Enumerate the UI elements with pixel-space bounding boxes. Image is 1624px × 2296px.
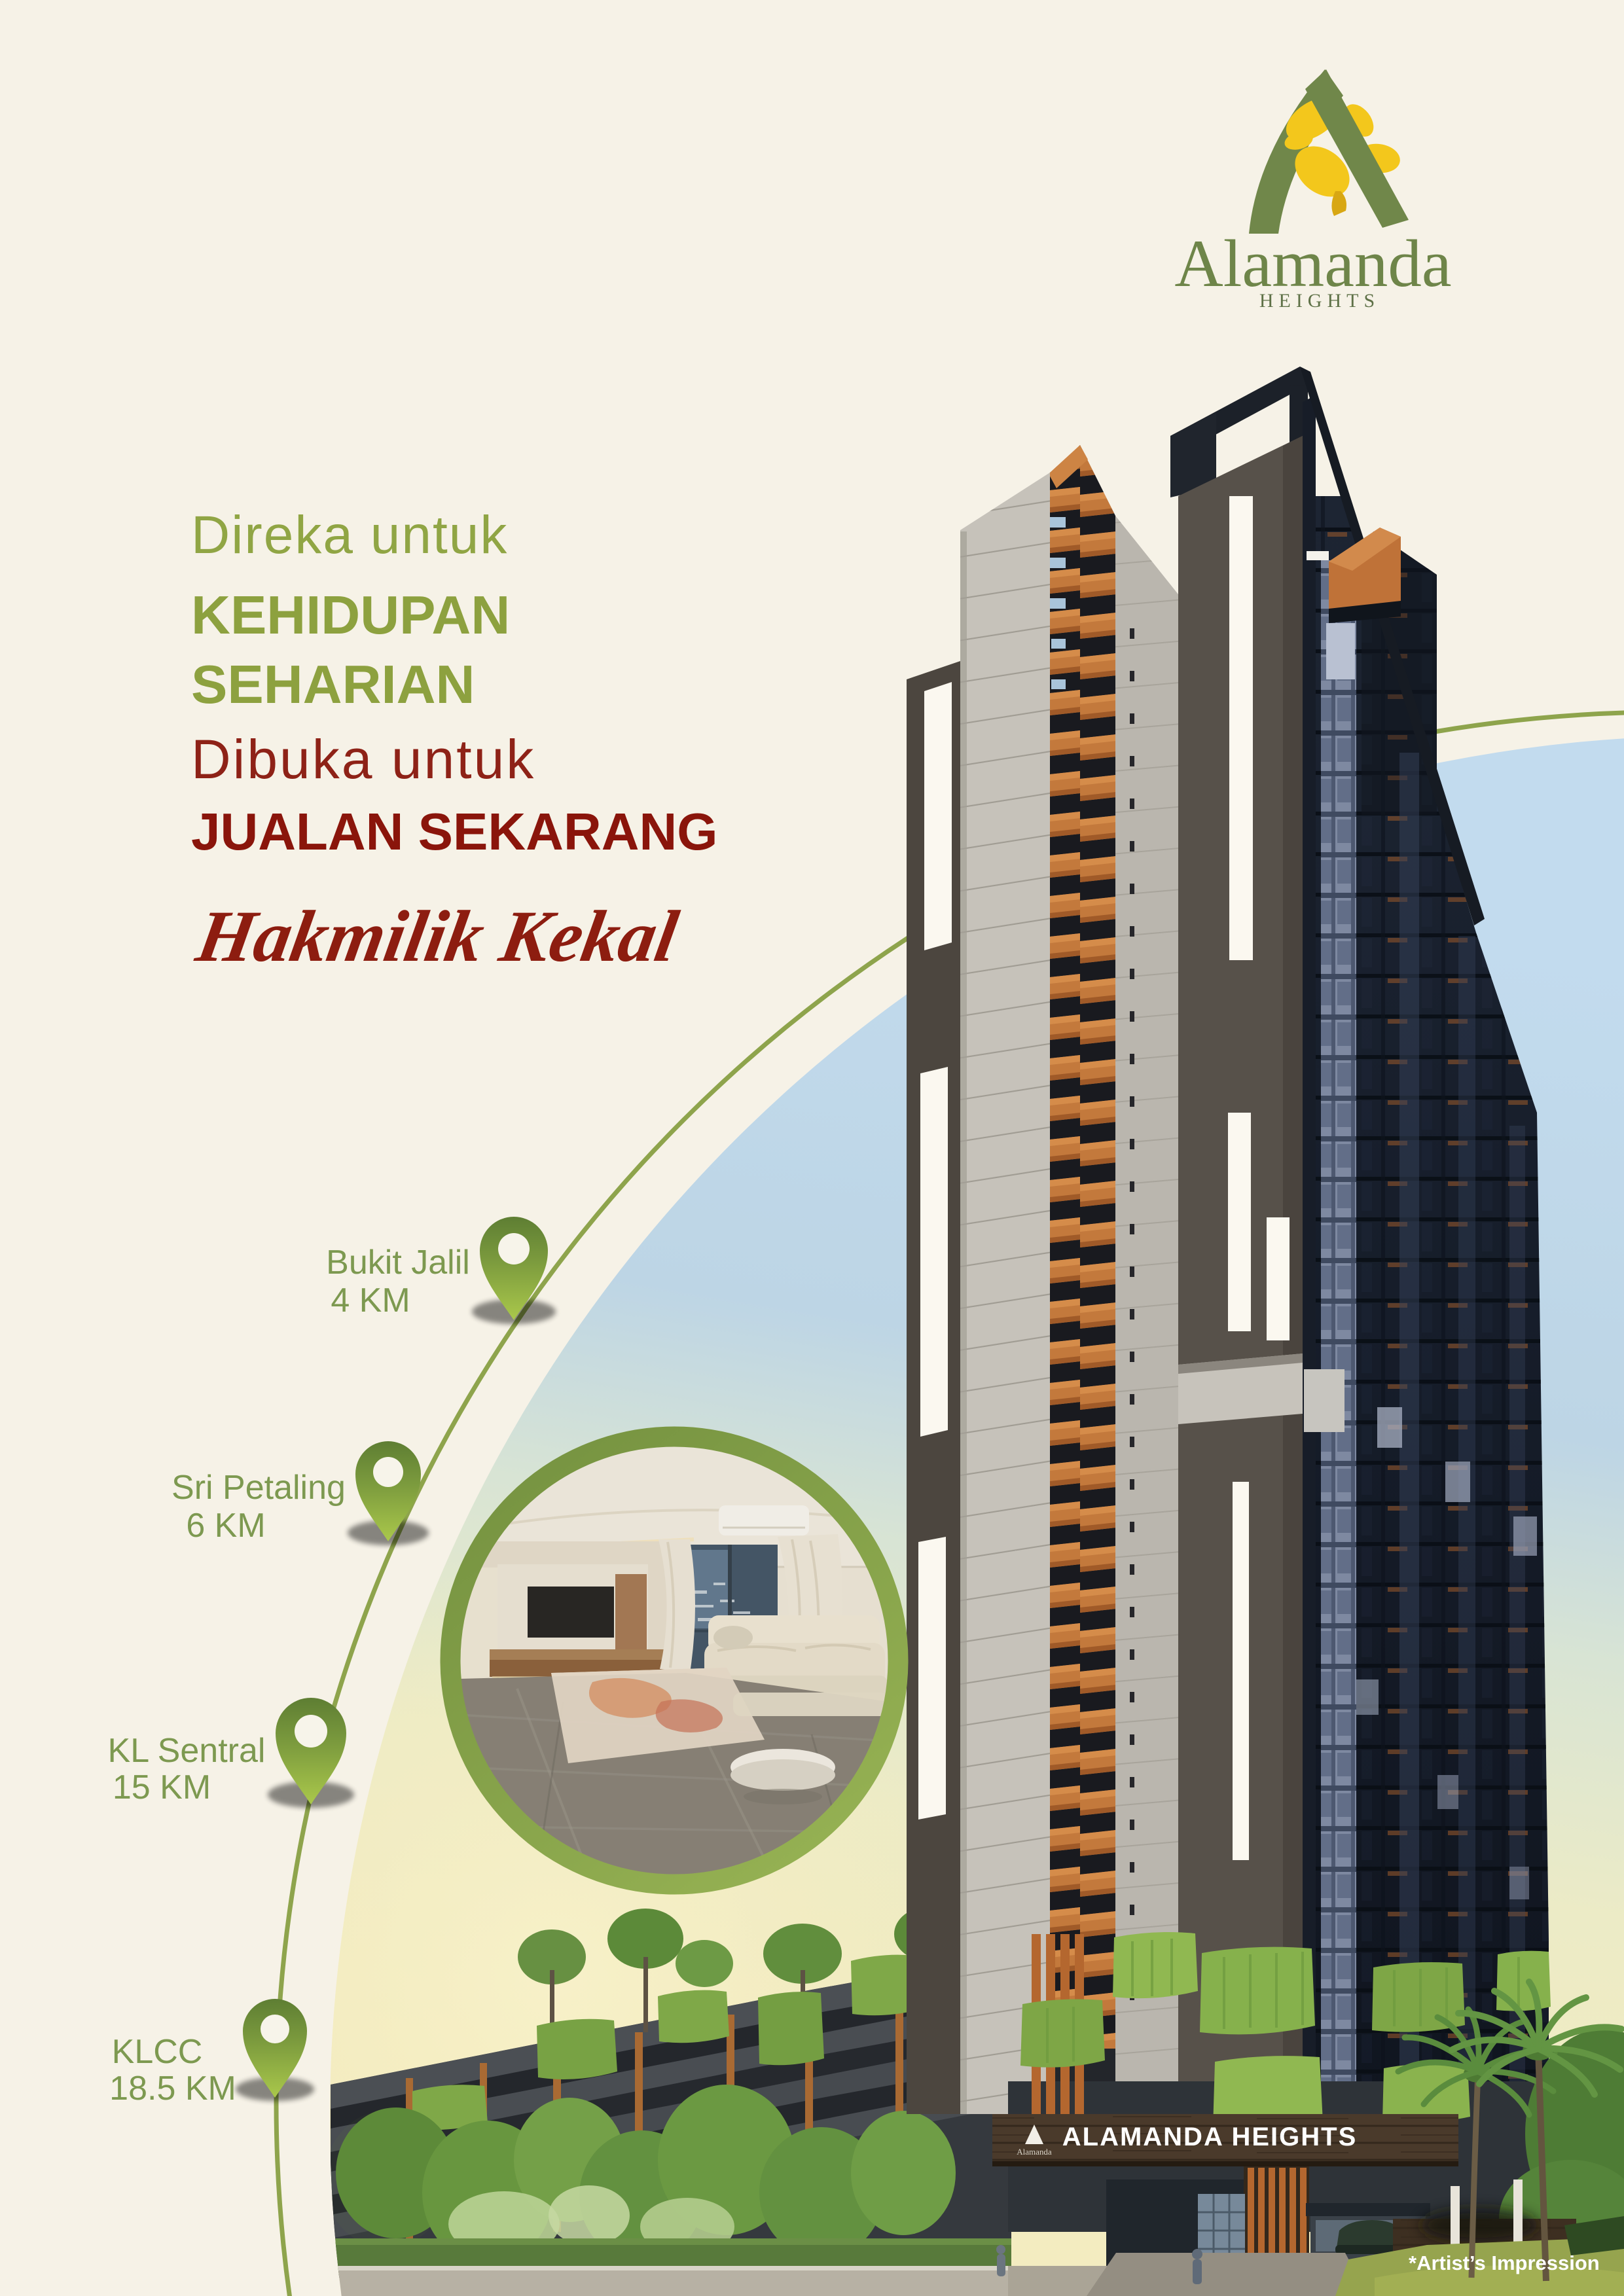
svg-text:18.5 KM: 18.5 KM <box>109 2070 236 2108</box>
svg-text:Sri Petaling: Sri Petaling <box>171 1469 346 1507</box>
svg-text:6 KM: 6 KM <box>186 1507 265 1545</box>
svg-text:KL Sentral: KL Sentral <box>108 1732 266 1770</box>
svg-text:Bukit Jalil: Bukit Jalil <box>326 1244 470 1282</box>
svg-text:SEHARIAN: SEHARIAN <box>191 654 475 715</box>
svg-text:KEHIDUPAN: KEHIDUPAN <box>191 584 510 645</box>
svg-text:HEIGHTS: HEIGHTS <box>1259 290 1380 312</box>
svg-text:4 KM: 4 KM <box>331 1282 410 1319</box>
svg-text:Hakmilik Kekal: Hakmilik Kekal <box>190 896 685 977</box>
svg-text:15 KM: 15 KM <box>113 1768 211 1806</box>
svg-text:Alamanda: Alamanda <box>1017 2147 1052 2157</box>
svg-text:Dibuka untuk: Dibuka untuk <box>191 728 535 790</box>
svg-text:ALAMANDA HEIGHTS: ALAMANDA HEIGHTS <box>1062 2123 1358 2151</box>
svg-text:*Artist’s Impression: *Artist’s Impression <box>1409 2251 1600 2274</box>
svg-text:JUALAN SEKARANG: JUALAN SEKARANG <box>191 802 718 861</box>
svg-text:KLCC: KLCC <box>112 2033 203 2071</box>
svg-text:Direka untuk: Direka untuk <box>191 505 508 565</box>
